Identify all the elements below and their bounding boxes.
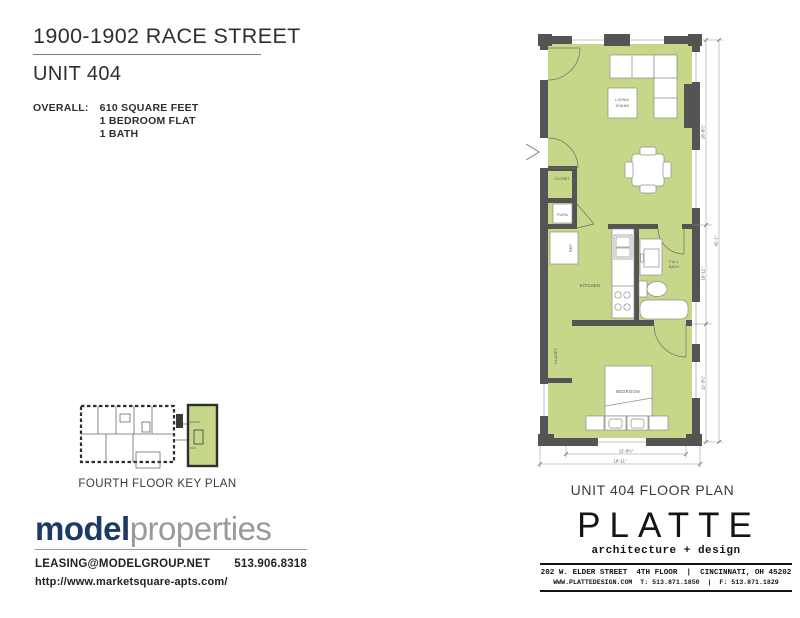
label-refrigerator: REF: [569, 244, 573, 252]
key-plan-building: [81, 406, 188, 468]
unit-floor-plan-drawing: LIVING/ DINING CLOSET FURN REF KITCHEN F…: [520, 26, 735, 481]
platte-divider-bottom: [540, 590, 792, 592]
platte-block: PLATTE architecture + design 202 W. ELDE…: [540, 508, 792, 592]
label-furnace: FURN: [557, 213, 568, 217]
platte-address: 202 W. ELDER STREET 4TH FLOOR | CINCINNA…: [540, 569, 792, 577]
entry-arrow-icon: [526, 144, 539, 160]
label-closet-upper: CLOSET: [554, 177, 570, 181]
overall-bedrooms: 1 BEDROOM FLAT: [100, 115, 199, 128]
brand-properties: properties: [130, 510, 272, 547]
dim-bottom-inner: 12'-8½": [619, 449, 634, 454]
title-block: 1900-1902 RACE STREET UNIT 404 OVERALL: …: [33, 24, 333, 141]
page-title: 1900-1902 RACE STREET: [33, 24, 333, 49]
model-properties-logo: modelproperties: [35, 512, 307, 546]
dim-right-overall: 42'-1": [714, 235, 719, 246]
label-bath-1: FULL: [669, 260, 679, 264]
leasing-phone[interactable]: 513.906.8318: [234, 558, 307, 570]
platte-contact[interactable]: WWW.PLATTEDESIGN.COM T: 513.871.1850 | F…: [540, 579, 792, 586]
brand-model: model: [35, 510, 130, 547]
overall-baths: 1 BATH: [100, 128, 199, 141]
key-plan-drawing: [78, 402, 228, 472]
footer-divider: [35, 549, 307, 550]
label-dining: DINING: [616, 104, 630, 108]
floor-plan-caption: UNIT 404 FLOOR PLAN: [545, 482, 760, 498]
platte-tagline: architecture + design: [540, 545, 792, 557]
overall-label: OVERALL:: [33, 102, 89, 141]
model-properties-block: modelproperties LEASING@MODELGROUP.NET 5…: [35, 512, 307, 588]
key-plan-unit-highlight: [188, 405, 217, 466]
overall-sqft: 610 SQUARE FEET: [100, 102, 199, 115]
overall-lines: 610 SQUARE FEET 1 BEDROOM FLAT 1 BATH: [100, 102, 199, 141]
label-bath-2: BATH: [669, 265, 679, 269]
platte-divider-top: [540, 563, 792, 565]
dim-right-top: 18'-8½": [701, 124, 706, 139]
label-living: LIVING/: [615, 98, 629, 102]
website-link[interactable]: http://www.marketsquare-apts.com/: [35, 576, 307, 588]
unit-title: UNIT 404: [33, 63, 333, 86]
title-divider: [33, 54, 261, 55]
dim-right-middle: 10'-11": [701, 267, 706, 280]
dim-right-bottom: 11'-3½": [701, 375, 706, 390]
label-bedroom: BEDROOM: [616, 389, 640, 394]
leasing-email[interactable]: LEASING@MODELGROUP.NET: [35, 558, 210, 570]
label-closet-lower: CLOSET: [554, 348, 558, 364]
contact-row: LEASING@MODELGROUP.NET 513.906.8318: [35, 558, 307, 570]
label-kitchen: KITCHEN: [580, 283, 600, 288]
platte-logo: PLATTE: [546, 508, 792, 544]
dim-bottom-overall: 18'-11": [613, 459, 626, 464]
key-plan-caption: FOURTH FLOOR KEY PLAN: [50, 478, 265, 490]
overall-summary: OVERALL: 610 SQUARE FEET 1 BEDROOM FLAT …: [33, 102, 333, 141]
